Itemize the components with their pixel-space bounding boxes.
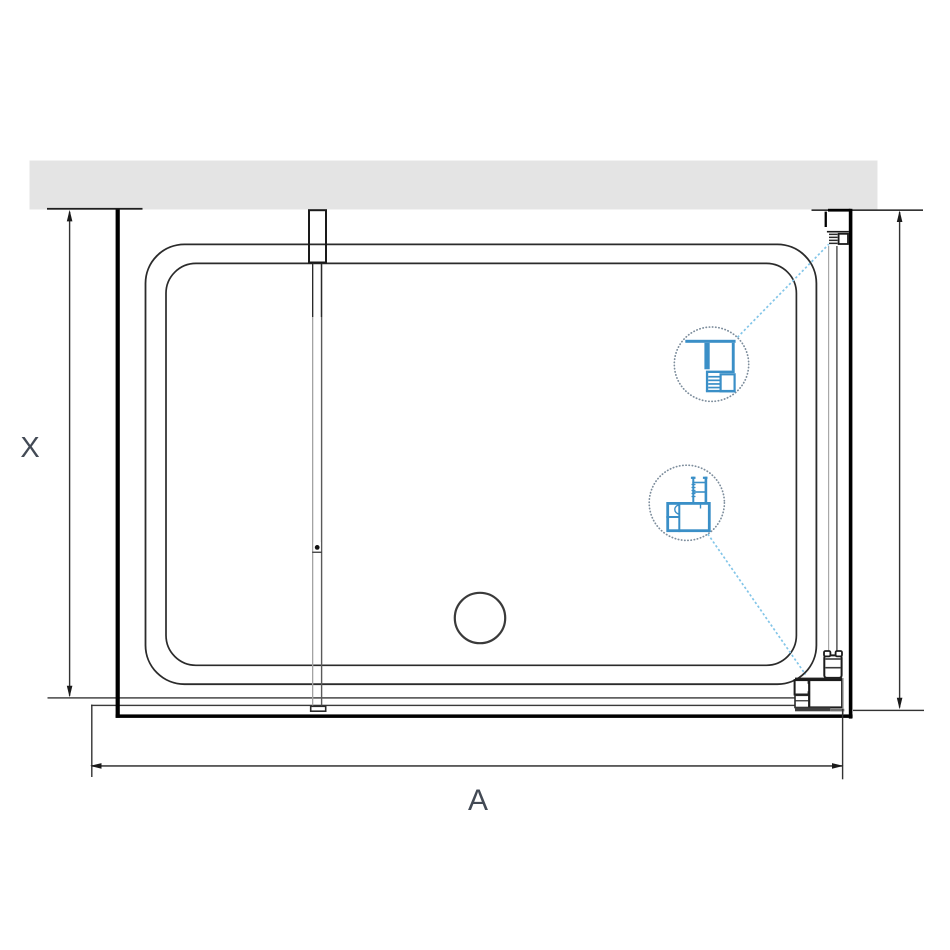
svg-text:X: X [20,432,39,464]
svg-text:A: A [468,784,488,817]
